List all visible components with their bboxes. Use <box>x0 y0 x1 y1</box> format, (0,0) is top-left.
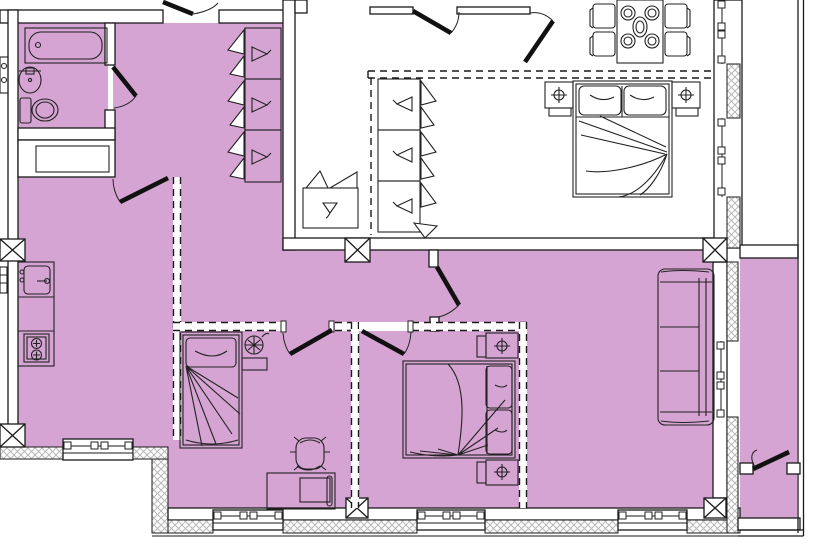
window-w3 <box>417 510 485 530</box>
wall-west <box>8 10 18 447</box>
hatched-wall <box>168 520 213 533</box>
column <box>345 238 370 262</box>
hatched-wall <box>133 447 168 459</box>
column <box>704 498 726 518</box>
door-jamb-a <box>429 250 438 267</box>
duct-cabinet <box>36 146 109 172</box>
balcony-south-wall <box>738 518 800 530</box>
wall-top-mid <box>219 10 289 23</box>
balcony-door-jamb-right <box>787 463 800 474</box>
column <box>0 424 25 447</box>
wall-hall-closet <box>283 0 295 250</box>
door-jamb <box>408 321 413 332</box>
room-bedrooms-and-living <box>285 250 715 508</box>
wall-window-right-living <box>713 262 727 498</box>
wall-top-left <box>0 10 163 23</box>
hatched-pier <box>727 262 738 341</box>
column <box>0 239 25 261</box>
wall-stub-top <box>295 0 307 13</box>
hatched-pier <box>727 64 740 118</box>
balcony-door-jamb-left <box>740 463 753 474</box>
hatched-pier <box>727 417 738 533</box>
hatched-wall <box>485 520 618 533</box>
hatched-wall <box>283 520 417 533</box>
balcony-divider <box>740 245 798 258</box>
floor-plan-drawing <box>0 0 822 549</box>
dining-table-symbol <box>590 0 690 63</box>
window-w2 <box>213 510 283 530</box>
hatched-wall <box>0 447 63 459</box>
hatched-pier <box>727 197 740 248</box>
door-jamb <box>281 321 286 332</box>
wall-bath-south <box>18 128 115 140</box>
hatched-wall <box>152 459 168 533</box>
window-w4 <box>618 510 687 530</box>
wall-closet-top-a <box>370 7 413 14</box>
floor-plan-canvas <box>0 0 822 549</box>
exterior-mask <box>0 459 152 549</box>
column <box>703 238 727 262</box>
room-balcony <box>740 250 797 518</box>
wall-closet-top-b <box>457 7 530 14</box>
